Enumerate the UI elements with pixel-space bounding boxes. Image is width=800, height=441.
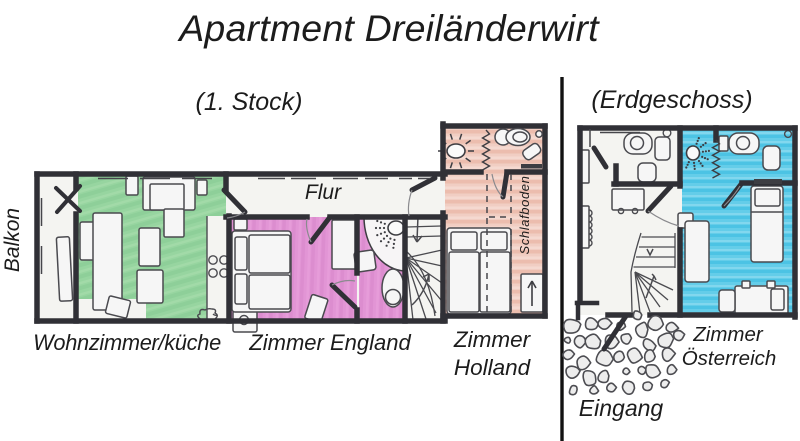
svg-text:(Erdgeschoss): (Erdgeschoss) <box>591 86 752 114</box>
svg-text:Zimmer: Zimmer <box>453 327 532 352</box>
svg-text:Zimmer England: Zimmer England <box>248 330 411 355</box>
svg-text:(1. Stock): (1. Stock) <box>196 88 303 116</box>
svg-text:Wohnzimmer/küche: Wohnzimmer/küche <box>33 330 221 355</box>
svg-text:Balkon: Balkon <box>1 208 24 272</box>
svg-text:Schlafboden: Schlafboden <box>517 176 532 255</box>
svg-text:Holland: Holland <box>454 355 532 380</box>
svg-text:Österreich: Österreich <box>682 347 777 370</box>
svg-text:Flur: Flur <box>305 181 342 204</box>
svg-text:Eingang: Eingang <box>579 395 664 421</box>
svg-text:Zimmer: Zimmer <box>692 323 764 346</box>
svg-text:Apartment Dreiländerwirt: Apartment Dreiländerwirt <box>177 7 600 49</box>
